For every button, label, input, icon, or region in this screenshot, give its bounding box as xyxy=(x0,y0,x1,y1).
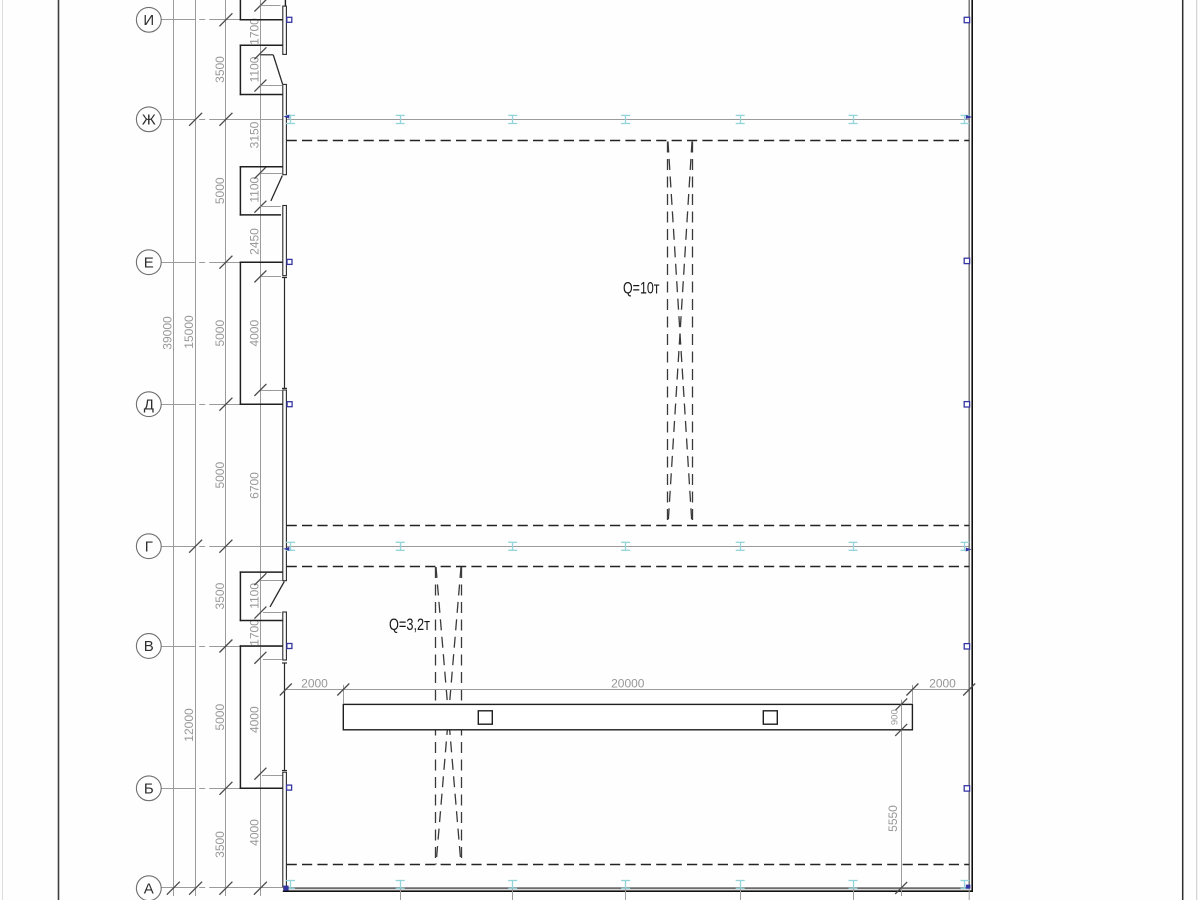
svg-text:Г: Г xyxy=(145,538,153,555)
svg-text:1100: 1100 xyxy=(247,176,261,202)
svg-text:Ж: Ж xyxy=(142,112,156,129)
svg-text:2000: 2000 xyxy=(301,676,328,690)
svg-text:3500: 3500 xyxy=(213,831,227,858)
svg-text:5000: 5000 xyxy=(213,704,227,731)
svg-text:4000: 4000 xyxy=(247,320,261,347)
svg-text:900: 900 xyxy=(890,709,901,725)
svg-text:1100: 1100 xyxy=(247,56,261,82)
svg-text:2450: 2450 xyxy=(247,228,261,255)
svg-text:6700: 6700 xyxy=(247,472,261,499)
svg-text:1100: 1100 xyxy=(247,583,261,609)
svg-text:5000: 5000 xyxy=(213,177,227,204)
svg-text:Д: Д xyxy=(144,396,154,413)
svg-text:Б: Б xyxy=(144,781,154,798)
svg-text:А: А xyxy=(144,880,154,897)
svg-text:Е: Е xyxy=(144,254,154,271)
svg-text:3150: 3150 xyxy=(247,121,261,148)
svg-text:Q=3,2т: Q=3,2т xyxy=(389,615,430,634)
svg-text:20000: 20000 xyxy=(611,676,645,690)
svg-text:5000: 5000 xyxy=(213,462,227,489)
svg-text:12000: 12000 xyxy=(182,708,196,742)
svg-text:2000: 2000 xyxy=(929,676,956,690)
svg-text:5000: 5000 xyxy=(213,320,227,347)
svg-text:3500: 3500 xyxy=(213,56,227,83)
svg-text:15000: 15000 xyxy=(182,315,196,349)
svg-text:Q=10т: Q=10т xyxy=(623,279,660,298)
svg-text:4000: 4000 xyxy=(247,819,261,846)
svg-text:39000: 39000 xyxy=(160,316,174,350)
svg-text:И: И xyxy=(143,12,154,29)
svg-text:1700: 1700 xyxy=(247,18,261,45)
svg-text:В: В xyxy=(144,638,154,655)
svg-text:1700: 1700 xyxy=(247,619,261,646)
svg-text:3500: 3500 xyxy=(213,582,227,609)
svg-text:5550: 5550 xyxy=(886,805,900,832)
svg-text:4000: 4000 xyxy=(247,706,261,733)
